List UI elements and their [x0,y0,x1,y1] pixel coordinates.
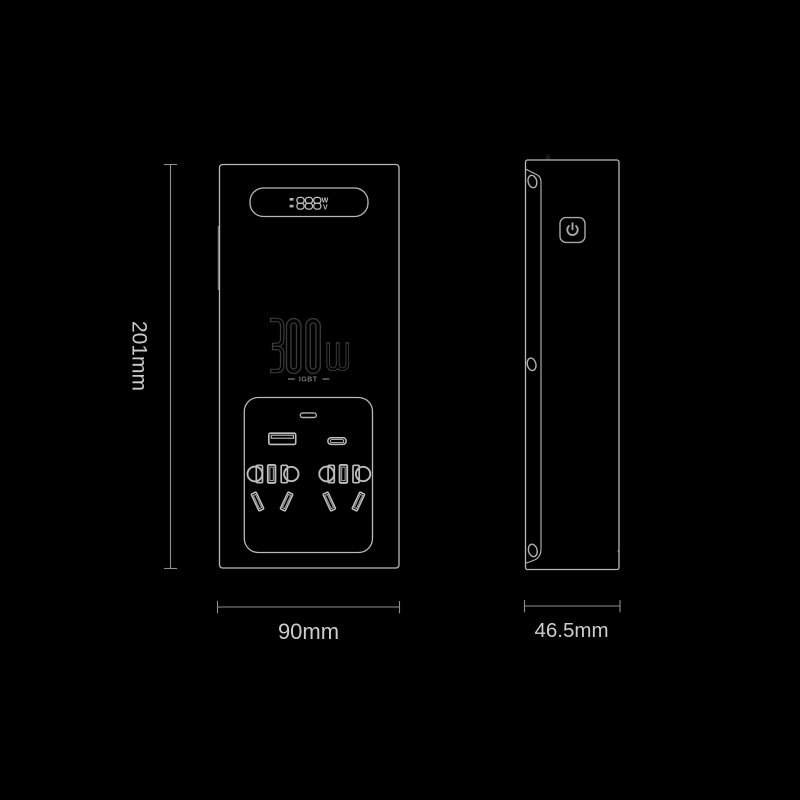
svg-text:IGBT: IGBT [299,376,318,383]
svg-text:W: W [322,197,329,204]
svg-text:201mm: 201mm [128,321,151,391]
svg-text:46.5mm: 46.5mm [534,619,608,642]
svg-text:V: V [323,205,328,212]
svg-text:90mm: 90mm [278,619,339,644]
